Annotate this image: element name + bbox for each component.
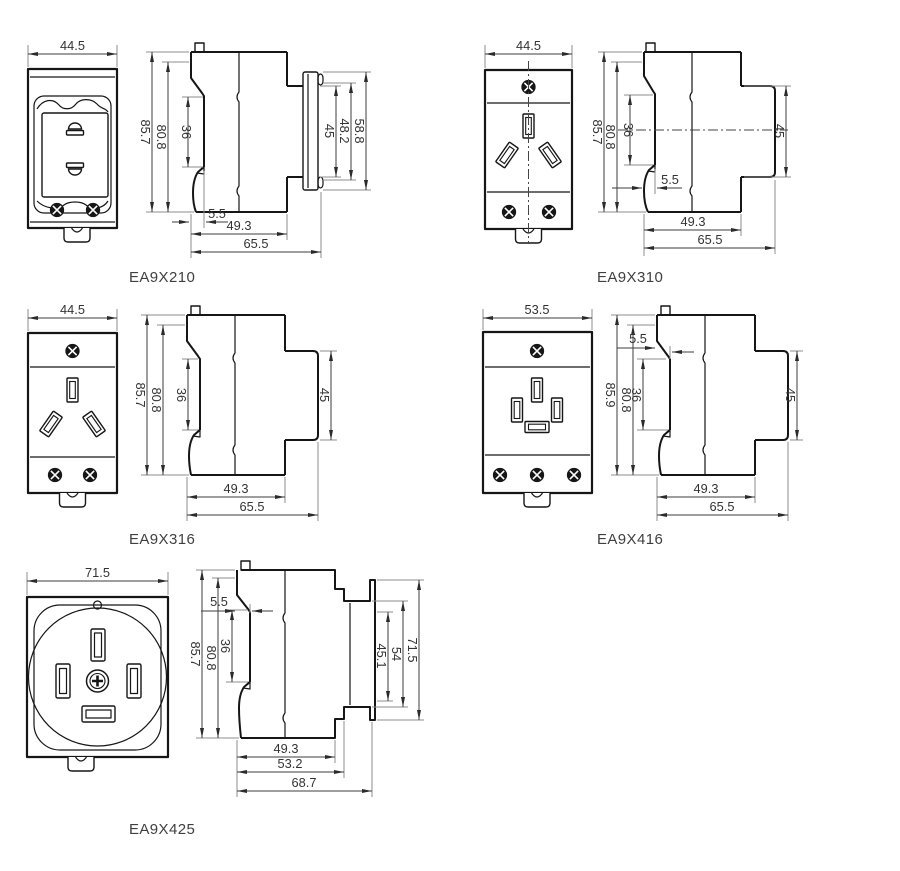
dim-depth: 49.3 (191, 214, 287, 240)
top-clip (195, 43, 204, 52)
dim-label: 48.2 (337, 119, 352, 144)
dim-label: 36 (629, 388, 644, 402)
dim-label: 36 (174, 388, 189, 402)
rail-profile (191, 52, 204, 167)
model-label: EA9X316 (129, 531, 195, 548)
socket-slot (525, 422, 549, 433)
dim-label: 45 (772, 124, 787, 138)
dim-label: 85.9 (603, 383, 618, 408)
face-plate (285, 351, 318, 440)
dim-label: 45 (322, 124, 337, 138)
top-clip (191, 306, 200, 315)
drawing-EA9X310: 44.5 85.7 80.8 36 5.5 49.3 (470, 28, 890, 268)
side-view (618, 43, 788, 212)
dim-label: 49.3 (694, 481, 719, 496)
face-plate (741, 86, 775, 177)
dim-face-inner: 45 (783, 351, 803, 440)
socket-slot (82, 706, 115, 722)
dim-label: 36 (179, 125, 194, 139)
rail-profile (187, 315, 200, 430)
socket-slot (67, 378, 78, 402)
dim-label: 58.8 (352, 119, 367, 144)
face-flange (318, 177, 323, 188)
side-view (187, 306, 318, 475)
dim-label: 45 (317, 388, 332, 402)
dim-label: 44.5 (60, 302, 85, 317)
dim-label: 54 (389, 647, 404, 661)
parting-line (233, 316, 235, 475)
dim-face-inner: 45 (744, 86, 791, 177)
side-outline (657, 315, 755, 475)
dim-label: 5.5 (661, 172, 679, 187)
model-label: EA9X210 (129, 269, 195, 286)
dim-total-depth: 68.7 (237, 722, 372, 797)
parting-line (283, 571, 285, 738)
dim-label: 65.5 (240, 499, 265, 514)
front-view (27, 597, 168, 771)
dim-label: 45 (783, 388, 798, 402)
socket-slot (512, 398, 523, 422)
parting-line (703, 316, 705, 475)
dim-rail-notch: 36 (629, 359, 668, 430)
screw-icon (87, 670, 109, 692)
dim-label: 68.7 (292, 775, 317, 790)
dim-rail-notch: 36 (174, 359, 198, 430)
din-clip-tab (68, 757, 94, 771)
front-view (28, 69, 117, 242)
front-view (483, 332, 592, 507)
dim-label: 49.3 (224, 481, 249, 496)
dim-total-depth: 65.5 (187, 442, 318, 521)
socket-slot (91, 629, 105, 661)
rail-profile (644, 52, 655, 165)
dim-label: 85.7 (590, 120, 605, 145)
model-label: EA9X416 (597, 531, 663, 548)
dim-label: 5.5 (210, 594, 228, 609)
side-outline (187, 315, 285, 475)
dim-label: 65.5 (698, 232, 723, 247)
dim-rail-offset: 5.5 (172, 171, 228, 258)
dim-depth: 49.3 (187, 477, 285, 521)
dim-label: 5.5 (629, 331, 647, 346)
dim-label: 65.5 (244, 236, 269, 251)
dim-front-width: 71.5 (27, 565, 168, 595)
dim-label: 85.7 (133, 383, 148, 408)
face-flange (318, 74, 323, 85)
top-clip (241, 561, 250, 570)
side-view (237, 561, 375, 738)
din-clip-tab (524, 493, 550, 507)
dim-label: 49.3 (227, 218, 252, 233)
dim-label: 36 (218, 639, 233, 653)
dim-rail-notch: 36 (179, 97, 203, 167)
rail-profile (657, 315, 670, 430)
model-label: EA9X310 (597, 269, 663, 286)
dim-label: 80.8 (603, 125, 618, 150)
dim-label: 49.3 (681, 214, 706, 229)
dim-label: 53.2 (278, 756, 303, 771)
dim-rail-offset: 5.5 (617, 331, 694, 359)
dim-front-width: 44.5 (28, 302, 117, 331)
rail-profile (239, 682, 250, 738)
rail-profile (237, 570, 250, 682)
socket-slot (532, 378, 543, 402)
dim-label: 45.1 (374, 644, 389, 669)
dim-total-depth: 65.5 (644, 180, 775, 254)
parting-line (690, 53, 692, 211)
dim-label: 80.8 (154, 125, 169, 150)
din-clip-tab (60, 493, 86, 507)
socket-slot (552, 398, 563, 422)
dim-label: 71.5 (85, 565, 110, 580)
dim-label: 80.8 (204, 646, 219, 671)
dim-label: 44.5 (516, 38, 541, 53)
top-clip (646, 43, 655, 52)
side-outline (241, 570, 375, 738)
dim-label: 65.5 (710, 499, 735, 514)
dimension-sheet: 44.5 85.7 80.8 36 5.5 49.3 (0, 0, 900, 871)
model-label: EA9X425 (129, 821, 195, 838)
dim-label: 53.5 (525, 302, 550, 317)
top-clip (661, 306, 670, 315)
drawing-EA9X210: 44.5 85.7 80.8 36 5.5 49.3 (10, 28, 400, 268)
dim-label: 71.5 (405, 638, 420, 663)
side-outline (191, 52, 303, 212)
drawing-EA9X416: 53.5 85.9 80.8 36 5.5 49.3 (460, 300, 890, 555)
side-view (657, 306, 788, 475)
dim-label: 80.8 (149, 388, 164, 413)
dim-depth: 49.3 (657, 477, 755, 521)
dim-label: 5.5 (208, 206, 226, 221)
socket-slot (56, 664, 70, 698)
drawing-EA9X425: 71.5 85.7 80.8 36 5.5 49.3 (10, 555, 440, 855)
front-view (28, 333, 117, 507)
dim-total-depth: 65.5 (191, 192, 321, 258)
face-plate (303, 72, 318, 190)
din-clip-tab (64, 228, 90, 242)
dim-label: 85.7 (138, 120, 153, 145)
dim-face-inner: 45 (317, 351, 337, 440)
front-view (485, 61, 572, 243)
parting-line (237, 53, 239, 211)
dim-depth: 49.3 (644, 214, 741, 236)
dim-rail-notch: 36 (218, 610, 248, 682)
dim-front-width: 44.5 (28, 38, 117, 67)
dim-label: 85.7 (188, 642, 203, 667)
dim-total-depth: 65.5 (657, 442, 788, 521)
side-view (191, 43, 323, 212)
socket-slot (127, 664, 141, 698)
dim-label: 44.5 (60, 38, 85, 53)
dim-label: 36 (621, 123, 636, 137)
drawing-EA9X316: 44.5 85.7 80.8 36 49.3 65.5 (10, 300, 405, 555)
dim-label: 49.3 (274, 741, 299, 756)
dim-front-width: 53.5 (483, 302, 592, 330)
